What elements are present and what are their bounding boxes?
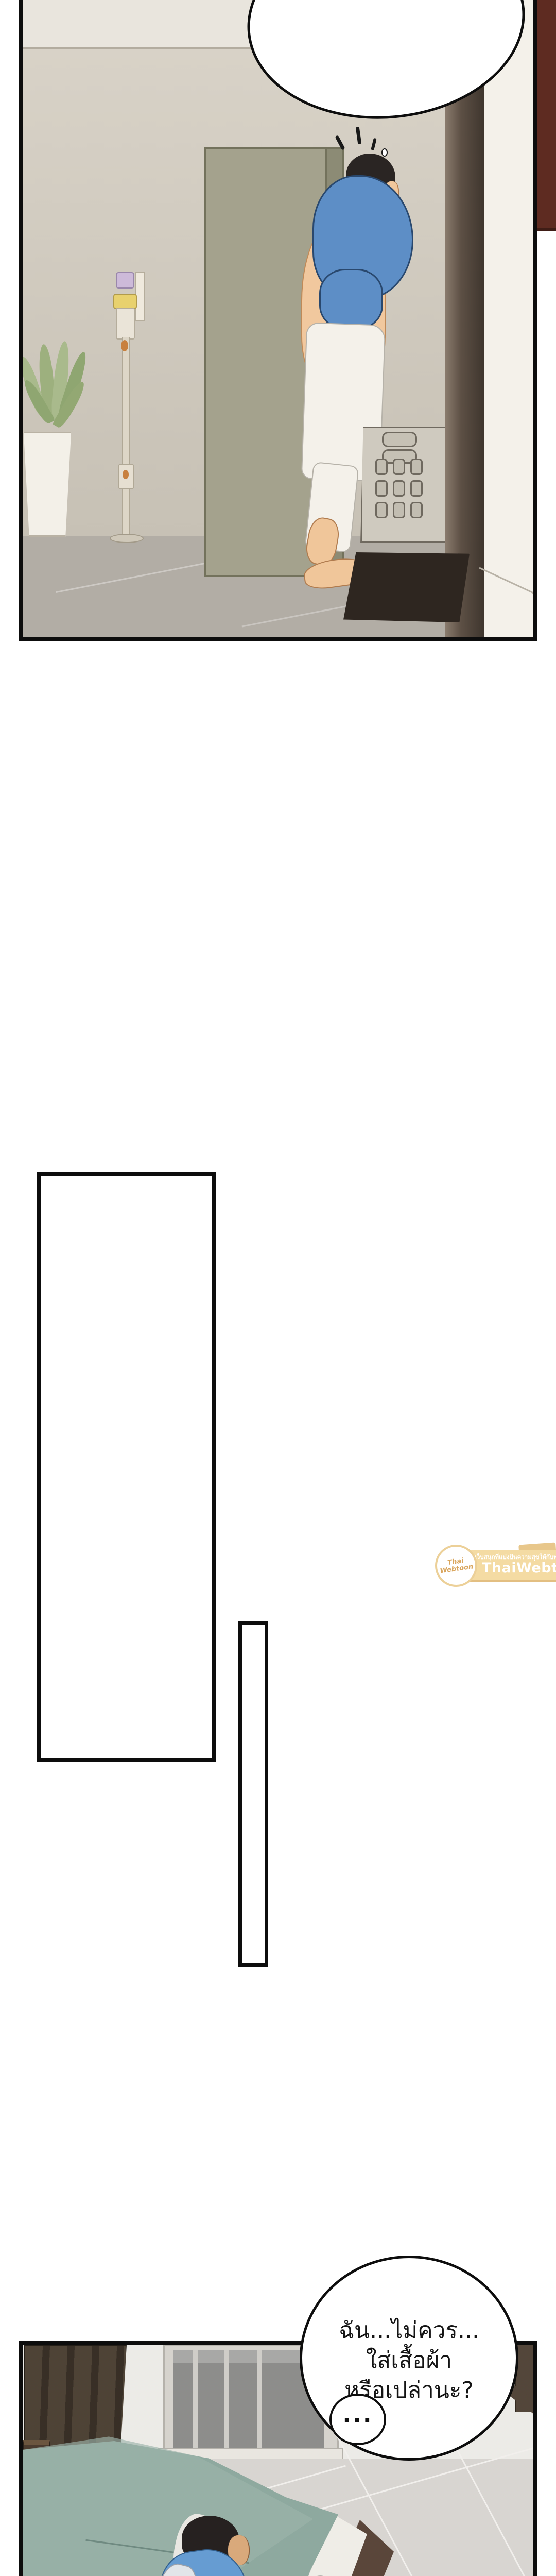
door-mat [343, 552, 470, 622]
empty-panel-box-large [37, 1172, 216, 1762]
basket-hole [375, 480, 388, 497]
vacuum-pole [122, 337, 130, 536]
thought-line: ใส่เสื้อผ้า [302, 2346, 516, 2376]
basket-hole [410, 459, 423, 475]
thought-bubble-text: ฉัน...ไม่ควร... ใส่เสื้อผ้า หรือเปล่านะ? [302, 2316, 516, 2405]
ellipsis-bubble: ... [329, 2394, 386, 2445]
ellipsis-text: ... [342, 2402, 373, 2428]
basket-hole [393, 480, 405, 497]
vacuum-head [116, 272, 134, 289]
watermark-logo-badge: Thai Webtoon [435, 1545, 477, 1587]
basket-hole [410, 480, 423, 497]
window-mullion [193, 2350, 198, 2448]
speech-bubble-empty-text [251, 18, 523, 42]
window-mullion [257, 2350, 262, 2448]
basket-hole [410, 502, 423, 518]
basket-hole [393, 459, 405, 475]
door-edge-strip [537, 0, 556, 231]
vacuum-joint-dot [121, 340, 128, 351]
vacuum-dust-cup [113, 294, 137, 309]
watermark-badge-text: Thai Webtoon [436, 1556, 476, 1575]
watermark-brand: ThaiWebtoon [482, 1560, 556, 1576]
man-hoodie-lower [319, 269, 383, 330]
thought-line: หรือเปล่านะ? [302, 2376, 516, 2405]
basket-hole [393, 502, 405, 518]
empty-panel-box-narrow [238, 1621, 268, 1967]
vacuum-base [110, 534, 144, 543]
webtoon-page: เว็บสนุกที่แบ่งปันความสุขให้กับทุกคน Tha… [0, 0, 556, 2576]
basket-hole [375, 459, 388, 475]
window-mullion [224, 2350, 229, 2448]
thought-line: ฉัน...ไม่ควร... [302, 2316, 516, 2346]
basket-hole [375, 502, 388, 518]
vacuum-body [116, 308, 135, 340]
white-door [484, 0, 533, 637]
basket-handle-slot [382, 432, 417, 447]
basket-hole-grid [375, 459, 426, 527]
vacuum-lower-dot [123, 470, 129, 479]
sweat-drop [381, 148, 388, 157]
